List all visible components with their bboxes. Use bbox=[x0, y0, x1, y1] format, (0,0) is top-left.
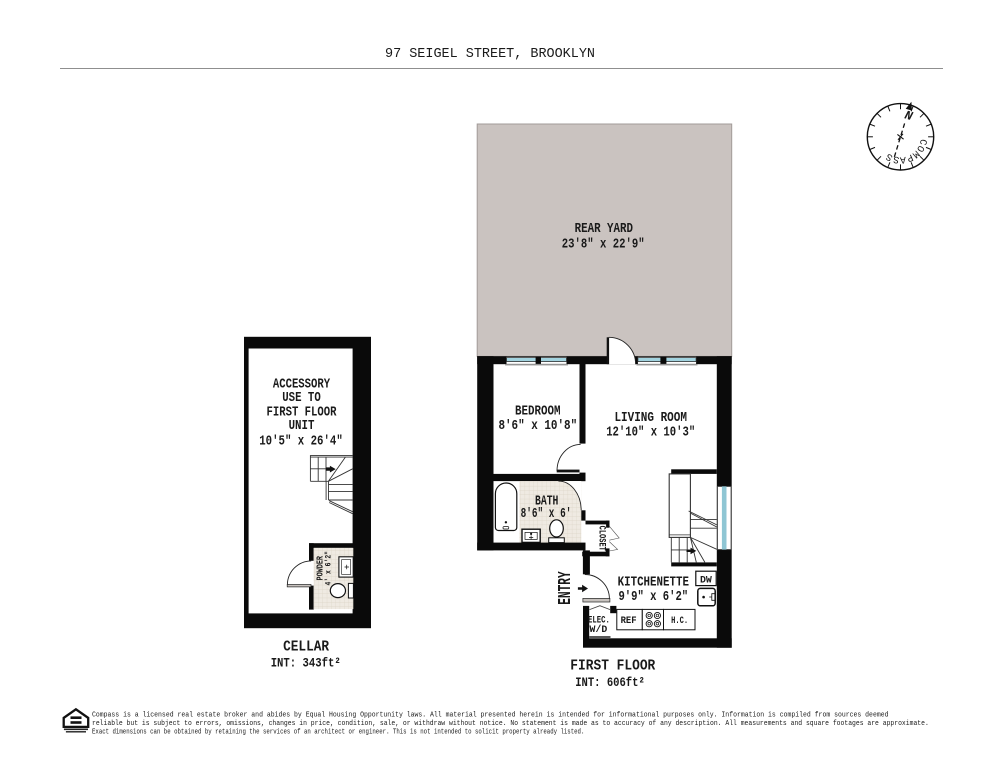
svg-text:Compass is a licensed real est: Compass is a licensed real estate broker… bbox=[92, 712, 889, 720]
svg-text:FIRST FLOOR: FIRST FLOOR bbox=[570, 658, 655, 675]
svg-text:CLOSET: CLOSET bbox=[596, 526, 608, 551]
svg-text:INT: 343ft²: INT: 343ft² bbox=[271, 655, 341, 670]
svg-text:10'5" x 26'4": 10'5" x 26'4" bbox=[259, 434, 343, 450]
svg-text:W/D: W/D bbox=[590, 624, 608, 636]
svg-text:97 SEIGEL STREET, BROOKLYN: 97 SEIGEL STREET, BROOKLYN bbox=[385, 47, 595, 62]
svg-text:23'8" x 22'9": 23'8" x 22'9" bbox=[562, 237, 645, 253]
svg-text:8'6" x 6': 8'6" x 6' bbox=[521, 506, 572, 522]
svg-text:UNIT: UNIT bbox=[289, 418, 315, 434]
svg-text:ENTRY: ENTRY bbox=[555, 571, 576, 605]
svg-text:REAR YARD: REAR YARD bbox=[575, 221, 633, 237]
svg-text:DW: DW bbox=[700, 574, 713, 586]
svg-text:H.C.: H.C. bbox=[671, 615, 688, 627]
svg-text:Exact dimensions can be obtain: Exact dimensions can be obtained by reta… bbox=[92, 728, 584, 736]
svg-text:8'6" x 10'8": 8'6" x 10'8" bbox=[498, 418, 577, 434]
svg-text:INT: 606ft²: INT: 606ft² bbox=[575, 675, 645, 690]
svg-text:REF: REF bbox=[621, 615, 637, 627]
svg-text:USE TO: USE TO bbox=[282, 390, 321, 406]
svg-text:12'10" x 10'3": 12'10" x 10'3" bbox=[606, 424, 695, 440]
svg-text:9'9" x 6'2": 9'9" x 6'2" bbox=[618, 589, 688, 605]
svg-text:CELLAR: CELLAR bbox=[283, 639, 329, 656]
svg-text:reliable but is subject to err: reliable but is subject to errors, omiss… bbox=[92, 720, 929, 728]
svg-text:4' x 6'2": 4' x 6'2" bbox=[325, 551, 334, 586]
